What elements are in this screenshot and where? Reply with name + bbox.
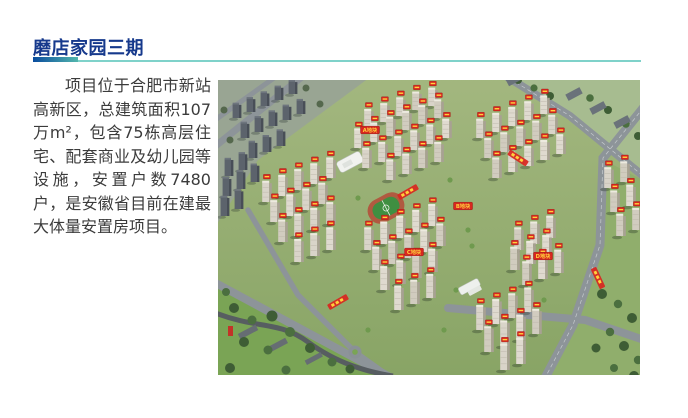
project-description-paragraph: 项目位于合肥市新站高新区，总建筑面积107万m²，包含75栋高层住宅、配套商业及… bbox=[33, 74, 211, 239]
svg-text:A地块: A地块 bbox=[363, 126, 378, 134]
aerial-rendering-image: A地块B地块C地块D地块 bbox=[218, 80, 640, 375]
slide: { "header": { "title": "磨店家园三期", "title_… bbox=[0, 0, 688, 418]
plot-label-banner: D地块 bbox=[534, 252, 553, 260]
project-aerial-photo: A地块B地块C地块D地块 bbox=[218, 80, 640, 375]
plot-label-banner: C地块 bbox=[405, 248, 424, 256]
title-underline-line bbox=[78, 60, 641, 62]
svg-text:C地块: C地块 bbox=[407, 248, 422, 256]
plot-label-banner: B地块 bbox=[454, 202, 473, 210]
title-underline-accent bbox=[33, 57, 78, 62]
svg-text:B地块: B地块 bbox=[456, 202, 471, 210]
park-sign bbox=[228, 326, 233, 336]
plot-label-banner: A地块 bbox=[361, 126, 380, 134]
title-underline bbox=[33, 56, 641, 62]
project-description: 项目位于合肥市新站高新区，总建筑面积107万m²，包含75栋高层住宅、配套商业及… bbox=[33, 74, 211, 239]
roundabout-center bbox=[352, 349, 358, 355]
svg-text:D地块: D地块 bbox=[536, 252, 551, 260]
